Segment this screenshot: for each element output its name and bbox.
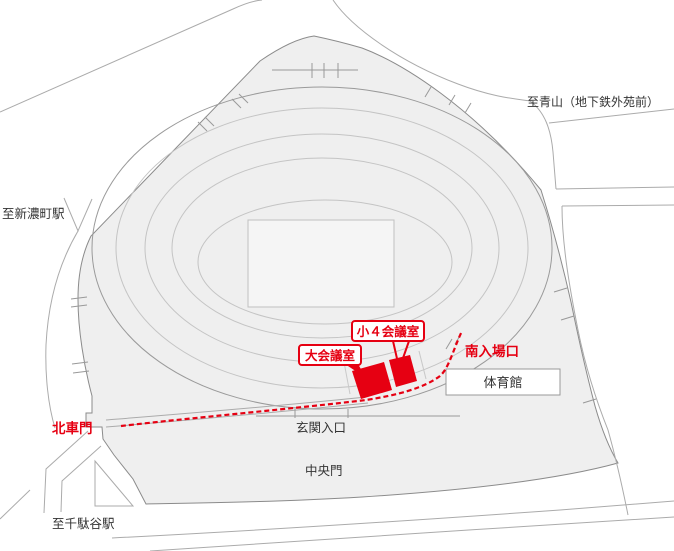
stadium-field: [248, 220, 394, 307]
station-sendagaya-label: 至千駄谷駅: [52, 516, 115, 531]
south-entrance-label: 南入場口: [465, 343, 519, 360]
station-aoyama-label: 至青山（地下鉄外苑前）: [527, 94, 659, 109]
large-room-label: 大会議室: [305, 348, 356, 363]
road-east-branch-south: [562, 205, 674, 206]
road-fork-shinanomachi: [64, 198, 92, 231]
road-west-street: [46, 231, 78, 428]
road-sw-c: [0, 490, 30, 519]
road-east-branch-north: [556, 187, 674, 189]
map-canvas: 体育館 小４会議室 大会議室 南入場口 北車門 玄関入口 中央門 至青山（地下鉄…: [0, 0, 674, 551]
road-sw-a: [44, 431, 88, 513]
entrance-label: 玄関入口: [296, 420, 346, 435]
tick: [465, 103, 471, 113]
road-bottom-2: [150, 517, 674, 551]
facility-access-map: 体育館 小４会議室 大会議室 南入場口 北車門 玄関入口 中央門 至青山（地下鉄…: [0, 0, 674, 551]
road-northwest: [0, 0, 262, 112]
north-gate-label: 北車門: [52, 420, 93, 437]
road-bottom-1: [112, 501, 674, 538]
central-gate-label: 中央門: [305, 463, 343, 478]
gymnasium-label: 体育館: [483, 375, 522, 391]
station-shinanomachi-label: 至新濃町駅: [2, 206, 65, 221]
small-room-label: 小４会議室: [356, 324, 420, 339]
road-aoyama-south-side: [549, 109, 674, 123]
road-northeast-neck: [530, 101, 556, 189]
